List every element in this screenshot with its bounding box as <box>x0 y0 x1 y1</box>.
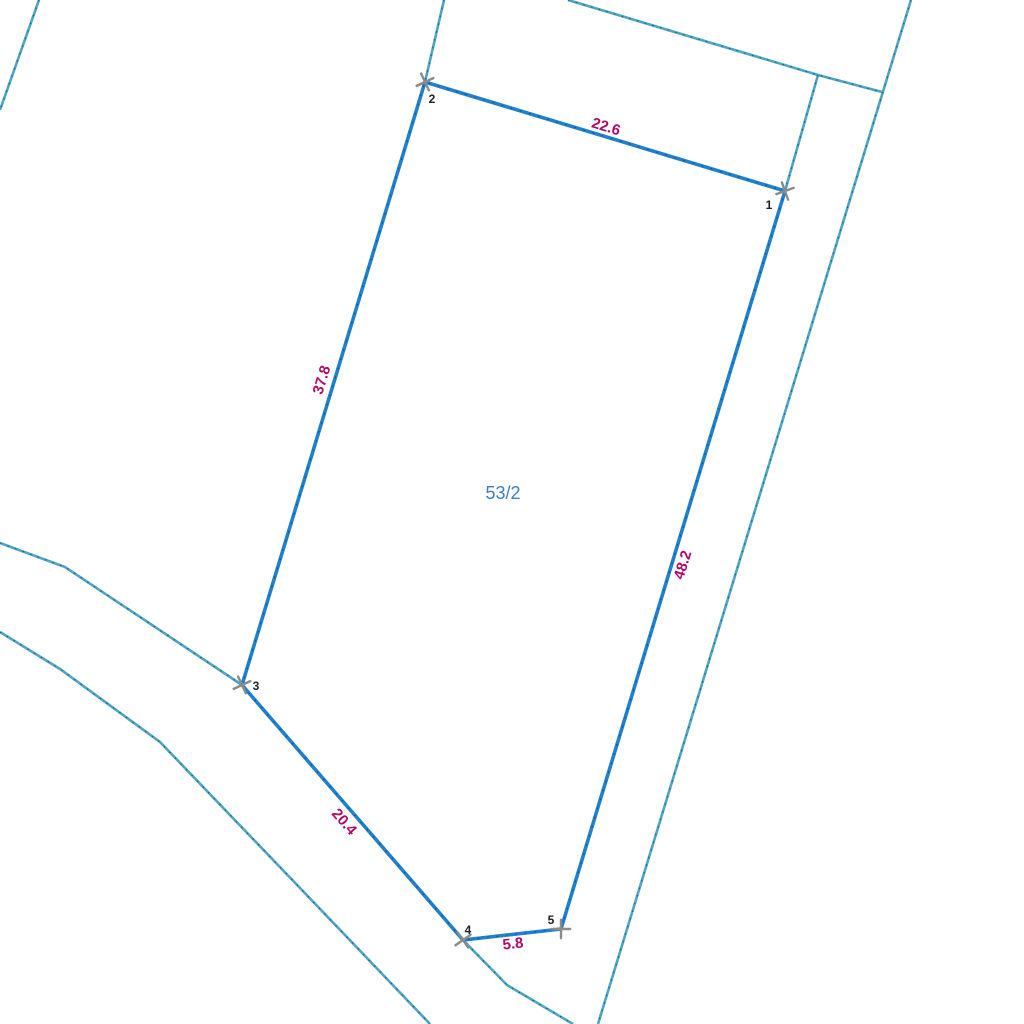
cadastral-road-upper-speckle <box>0 543 573 1024</box>
parcel-number-label: 53/2 <box>485 483 520 503</box>
vertex-marker-5[interactable] <box>552 920 570 938</box>
parcel-boundary[interactable] <box>242 82 785 940</box>
vertex-label-1: 1 <box>766 198 773 212</box>
map-canvas[interactable]: 1234522.637.848.220.45.853/2 <box>0 0 1024 1024</box>
vertex-label-4: 4 <box>465 923 472 937</box>
vertex-label-5: 5 <box>548 913 555 927</box>
vertex-markers-layer <box>234 74 794 948</box>
parcel-boundary-speckle <box>242 82 785 940</box>
measurement-label-2-1: 22.6 <box>590 115 623 140</box>
vertex-label-2: 2 <box>429 92 436 106</box>
labels-layer: 1234522.637.848.220.45.853/2 <box>253 92 773 954</box>
vertex-label-3: 3 <box>253 679 260 693</box>
cadastral-line-topleft <box>0 0 39 110</box>
measurement-label-3-4: 20.4 <box>328 805 360 839</box>
cadastral-map: 1234522.637.848.220.45.853/2 <box>0 0 1024 1024</box>
cadastral-road-upper <box>0 543 573 1024</box>
cadastral-line-branch-v1 <box>785 75 818 191</box>
cadastral-lines-layer <box>0 0 911 1024</box>
parcel-layer <box>242 82 785 940</box>
measurement-label-4-5: 5.8 <box>502 934 525 953</box>
cadastral-line-above-v2 <box>425 0 444 82</box>
